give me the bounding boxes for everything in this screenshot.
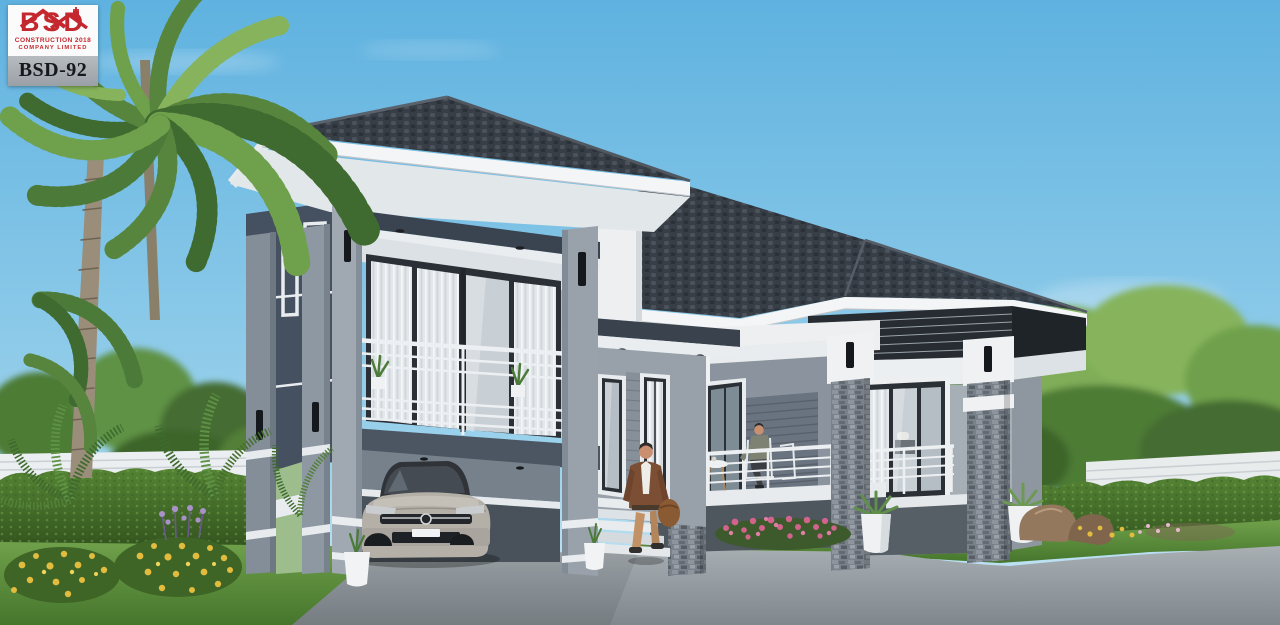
- front-column-left: [332, 206, 362, 576]
- architectural-rendering: BSD CONSTRUCTION 2018 COMPANY LIMITED BS…: [0, 0, 1280, 625]
- side-column-a: [246, 232, 276, 574]
- side-column-b: [302, 224, 330, 574]
- logo-company-text: COMPANY LIMITED: [10, 45, 96, 51]
- brand-logo: BSD CONSTRUCTION 2018 COMPANY LIMITED BS…: [8, 5, 98, 86]
- model-code-badge: BSD-92: [8, 56, 98, 86]
- logo-construction-text: CONSTRUCTION 2018: [10, 37, 96, 44]
- logo-card: BSD CONSTRUCTION 2018 COMPANY LIMITED: [8, 5, 98, 56]
- roof-logo-icon: [17, 5, 89, 29]
- stone-pillar-right-wing: [963, 336, 1014, 563]
- front-column-right: [562, 226, 598, 576]
- render-canvas: [0, 0, 1280, 625]
- entrance-window-1: [598, 374, 626, 498]
